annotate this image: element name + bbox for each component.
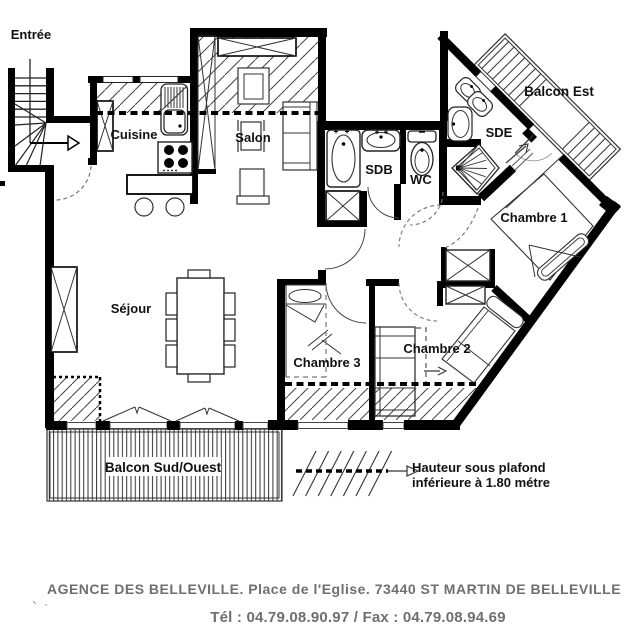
- svg-text:Chambre 2: Chambre 2: [403, 341, 470, 356]
- svg-text:Chambre 3: Chambre 3: [293, 355, 360, 370]
- svg-text:Entrée: Entrée: [11, 27, 51, 42]
- svg-text:SDB: SDB: [365, 162, 392, 177]
- svg-text:SDE: SDE: [486, 125, 513, 140]
- svg-text:Balcon Sud/Ouest: Balcon Sud/Ouest: [105, 460, 222, 475]
- svg-text:Hauteur sous plafond: Hauteur sous plafond: [412, 460, 546, 475]
- svg-text:Balcon Est: Balcon Est: [524, 84, 594, 99]
- svg-text:Cuisine: Cuisine: [111, 127, 158, 142]
- svg-text:Séjour: Séjour: [111, 301, 151, 316]
- svg-text:inférieure à 1.80 métre: inférieure à 1.80 métre: [412, 475, 550, 490]
- svg-text:WC: WC: [410, 172, 432, 187]
- svg-text:AGENCE DES BELLEVILLE. Place d: AGENCE DES BELLEVILLE. Place de l'Eglise…: [47, 581, 621, 597]
- svg-text:Tél : 04.79.08.90.97 / Fax : 0: Tél : 04.79.08.90.97 / Fax : 04.79.08.94…: [210, 609, 505, 626]
- svg-text:Salon: Salon: [235, 130, 270, 145]
- svg-text:Chambre 1: Chambre 1: [500, 210, 567, 225]
